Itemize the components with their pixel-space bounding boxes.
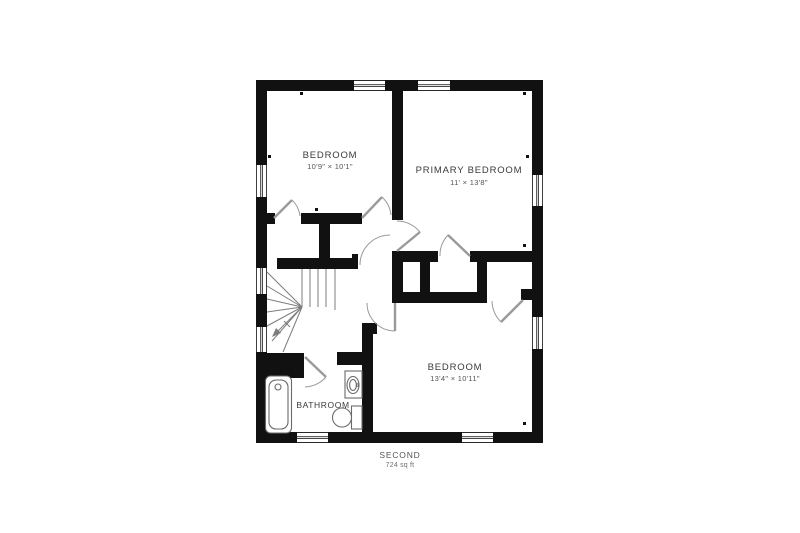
room-name-label: PRIMARY BEDROOM [416,165,523,176]
door-swing [274,200,300,218]
floor-area-label: 724 sq ft [386,462,415,469]
window [257,268,267,294]
window [354,81,385,91]
floorplan-canvas: BEDROOM 10'9" × 10'1" PRIMARY BEDROOM 11… [0,0,800,533]
window [257,327,267,352]
sink-icon [345,371,362,398]
room-dimensions-label: 10'9" × 10'1" [307,162,353,171]
door-swing [397,221,420,251]
room-name-label: BEDROOM [428,362,483,373]
floorplan-page: BEDROOM 10'9" × 10'1" PRIMARY BEDROOM 11… [0,0,800,533]
door-swing [360,235,390,265]
room-name-label: BEDROOM [303,150,358,161]
interior-walls [260,80,532,432]
door-swing [305,357,326,387]
window [462,433,493,443]
window [533,317,543,349]
staircase [267,269,335,352]
window [418,81,450,91]
door-swing [492,300,523,322]
bathtub-icon [266,376,292,433]
room-dimensions-label: 13'4" × 10'11" [430,374,480,383]
labels: BEDROOM 10'9" × 10'1" PRIMARY BEDROOM 11… [296,150,522,469]
window [297,433,328,443]
window [257,165,267,197]
door-swing [440,235,470,256]
window [533,175,543,206]
room-dimensions-label: 11' × 13'8" [450,178,488,187]
door-swing [362,197,391,218]
floor-label: SECOND [379,450,420,460]
room-name-label: BATHROOM [296,400,349,410]
